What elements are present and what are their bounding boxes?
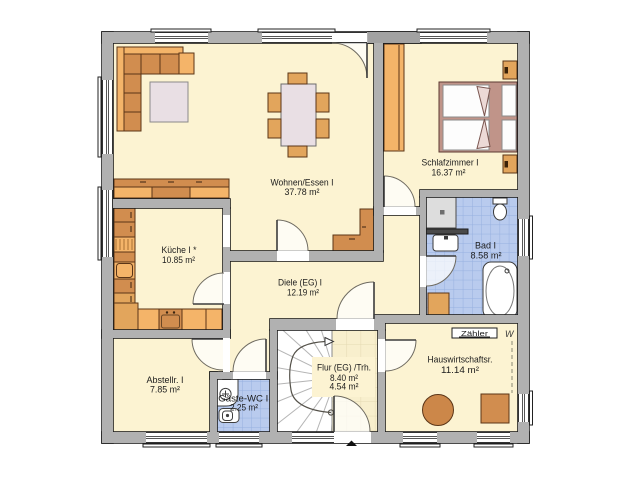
svg-text:8.58 m²: 8.58 m² [471,251,502,261]
svg-text:10.85 m²: 10.85 m² [162,255,195,265]
svg-text:Flur (EG) /Trh.: Flur (EG) /Trh. [317,363,371,373]
svg-text:Zähler: Zähler [461,329,489,338]
svg-text:2.25 m²: 2.25 m² [230,403,258,413]
svg-text:Abstellr. I: Abstellr. I [147,375,184,385]
svg-text:Diele (EG) I: Diele (EG) I [278,278,322,288]
svg-text:4.54 m²: 4.54 m² [330,382,359,392]
svg-text:16.37 m²: 16.37 m² [432,168,466,178]
svg-text:12.19 m²: 12.19 m² [287,288,319,298]
svg-text:Bad I: Bad I [475,241,496,251]
svg-text:Hauswirtschaftsr.: Hauswirtschaftsr. [428,355,493,365]
svg-text:11.14 m²: 11.14 m² [441,365,479,375]
svg-text:Schlafzimmer I: Schlafzimmer I [422,158,479,168]
svg-text:7.85 m²: 7.85 m² [150,385,180,395]
svg-text:Küche I *: Küche I * [162,245,197,255]
svg-text:37.78 m²: 37.78 m² [285,187,320,197]
svg-text:Wohnen/Essen I: Wohnen/Essen I [271,178,334,188]
